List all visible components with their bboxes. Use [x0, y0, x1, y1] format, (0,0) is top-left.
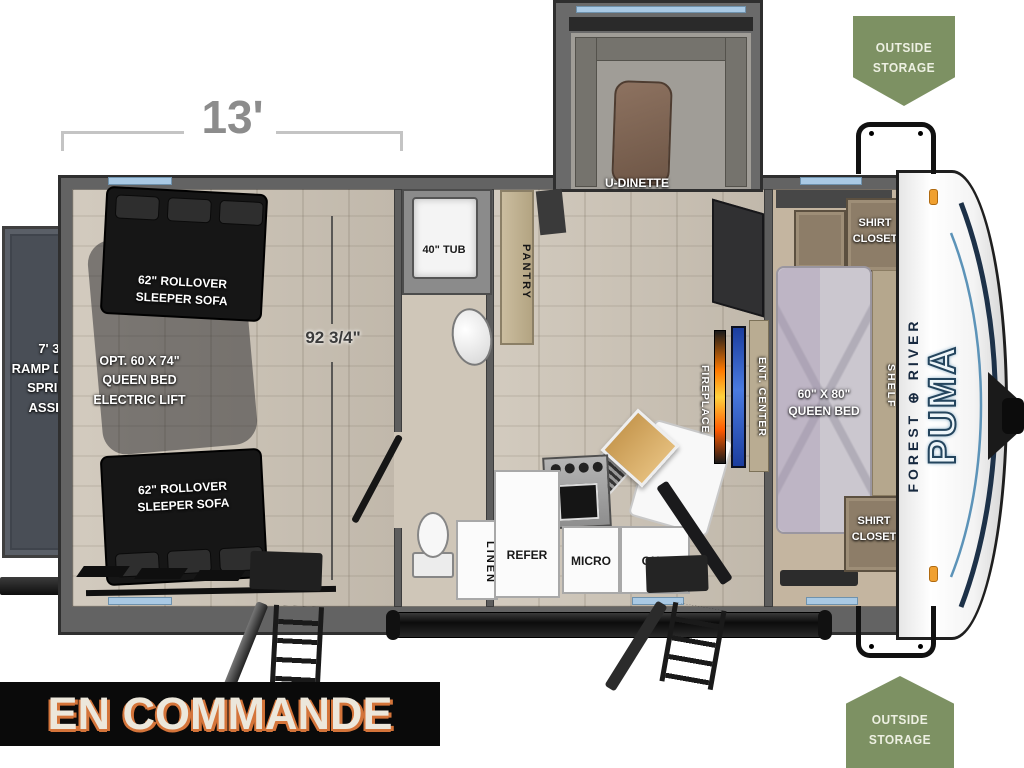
dinette-bench-back: [575, 37, 747, 61]
front-grab-bracket-top: [856, 122, 936, 174]
outside-storage-badge-bottom: OUTSIDE STORAGE: [846, 676, 954, 768]
tv: [731, 326, 746, 468]
globe-icon: ⊕: [905, 388, 921, 404]
floorplan-canvas: 13' 7' 3" RAMP DOOR SPRING ASSIST U-DINE…: [0, 0, 1024, 768]
sleeper-sofa-top: 62" ROLLOVER SLEEPER SOFA: [100, 186, 268, 322]
refer-label: REFER: [496, 548, 558, 562]
opt-queen-lift-label: OPT. 60 X 74" QUEEN BED ELECTRIC LIFT: [82, 352, 197, 410]
oven: [558, 483, 600, 521]
sofa-headrest: [115, 194, 160, 220]
status-banner-text: EN COMMANDE: [0, 682, 440, 746]
bolt-icon: [918, 131, 923, 136]
awning-roller: [388, 612, 832, 638]
hitch-jack: [1002, 398, 1024, 434]
measure-line-upper: [331, 216, 333, 324]
shirt-closet-label: SHIRT CLOSET: [846, 514, 902, 546]
model-wordmark: PUMA: [922, 265, 965, 545]
bedroom-cabinet: [794, 210, 846, 270]
burner-icon: [564, 463, 575, 474]
dimension-tick-left: [61, 131, 64, 151]
outside-storage-badge-top: OUTSIDE STORAGE: [853, 16, 955, 106]
clearance-light-icon: [929, 566, 938, 582]
wall-garage-bath: [394, 189, 402, 607]
queen-bed: 60" X 80" QUEEN BED: [776, 266, 872, 534]
window-top-garage: [108, 177, 172, 185]
dinette-slide-topper: [569, 17, 753, 31]
bolt-icon: [869, 644, 874, 649]
burner-icon: [592, 462, 603, 473]
status-banner: EN COMMANDE: [0, 682, 440, 746]
window-top-bedroom: [800, 177, 862, 185]
window-bottom-garage: [108, 597, 172, 605]
microwave-cabinet: MICRO: [562, 526, 620, 594]
shelf: SHELF: [872, 270, 898, 496]
bolt-icon: [869, 131, 874, 136]
overhead-cabinet: [536, 189, 566, 235]
dimension-line-left: [62, 131, 184, 134]
dinette-bench-right: [725, 37, 747, 187]
window-dinette: [576, 6, 746, 13]
garage-length-label: 92 3/4": [294, 328, 372, 348]
sleeper-sofa-label: 62" ROLLOVER SLEEPER SOFA: [103, 476, 263, 518]
queen-bed-label: 60" X 80" QUEEN BED: [778, 386, 870, 421]
dinette-bench-left: [575, 37, 597, 187]
brand-wordmark: FOREST ⊕ RIVER: [905, 265, 922, 545]
linen-label: LINEN: [458, 530, 496, 594]
pantry-label: PANTRY: [502, 212, 532, 332]
sofa-headrest: [219, 200, 264, 226]
front-grab-bracket-bottom: [856, 606, 936, 658]
bolt-icon: [918, 644, 923, 649]
tie-down-rail: [76, 566, 130, 577]
outside-storage-label: OUTSIDE STORAGE: [850, 710, 949, 749]
measure-line-lower: [331, 362, 333, 580]
outside-storage-label: OUTSIDE STORAGE: [857, 38, 951, 77]
dinette-table: [611, 80, 673, 186]
micro-label: MICRO: [564, 554, 618, 568]
shirt-closet-label: SHIRT CLOSET: [848, 216, 902, 248]
wardrobe-panel: [712, 199, 764, 318]
sleeper-sofa-label: 62" ROLLOVER SLEEPER SOFA: [102, 270, 262, 312]
linen-closet: LINEN: [456, 520, 498, 600]
cap-logo: FOREST ⊕ RIVER PUMA: [905, 265, 995, 545]
awning-end-cap: [818, 610, 832, 640]
toilet-bowl: [417, 512, 449, 558]
garage-step-platform: [249, 551, 322, 591]
window-bottom-bedroom: [806, 597, 858, 605]
dimension-13ft-label: 13': [185, 90, 280, 144]
sofa-headrest: [167, 197, 212, 223]
u-dinette-slideout: [553, 0, 763, 192]
entry-step-platform: [645, 555, 708, 593]
u-dinette-label: U-DINETTE: [576, 176, 698, 190]
tie-down-rail: [192, 570, 246, 581]
shelf-label: SHELF: [873, 331, 897, 441]
tie-down-rail: [134, 568, 188, 579]
bed-foot-step: [780, 570, 858, 586]
pantry: PANTRY: [500, 190, 534, 345]
ent-center-label: ENT. CENTER: [750, 325, 768, 469]
awning-end-cap: [386, 610, 400, 640]
refrigerator: REFER: [494, 470, 560, 598]
dimension-line-right: [276, 131, 402, 134]
garage-entry-steps: [270, 605, 324, 686]
fireplace-label: FIREPLACE: [697, 336, 711, 462]
clearance-light-icon: [929, 189, 938, 205]
ent-center-cabinet: ENT. CENTER: [749, 320, 769, 472]
shirt-closet-bottom: SHIRT CLOSET: [844, 496, 904, 572]
tub-label: 40" TUB: [408, 244, 480, 256]
tub: [412, 197, 478, 279]
fireplace: [714, 330, 726, 464]
tub-surround: [402, 189, 492, 295]
dimension-tick-right: [400, 131, 403, 151]
burner-icon: [578, 462, 589, 473]
